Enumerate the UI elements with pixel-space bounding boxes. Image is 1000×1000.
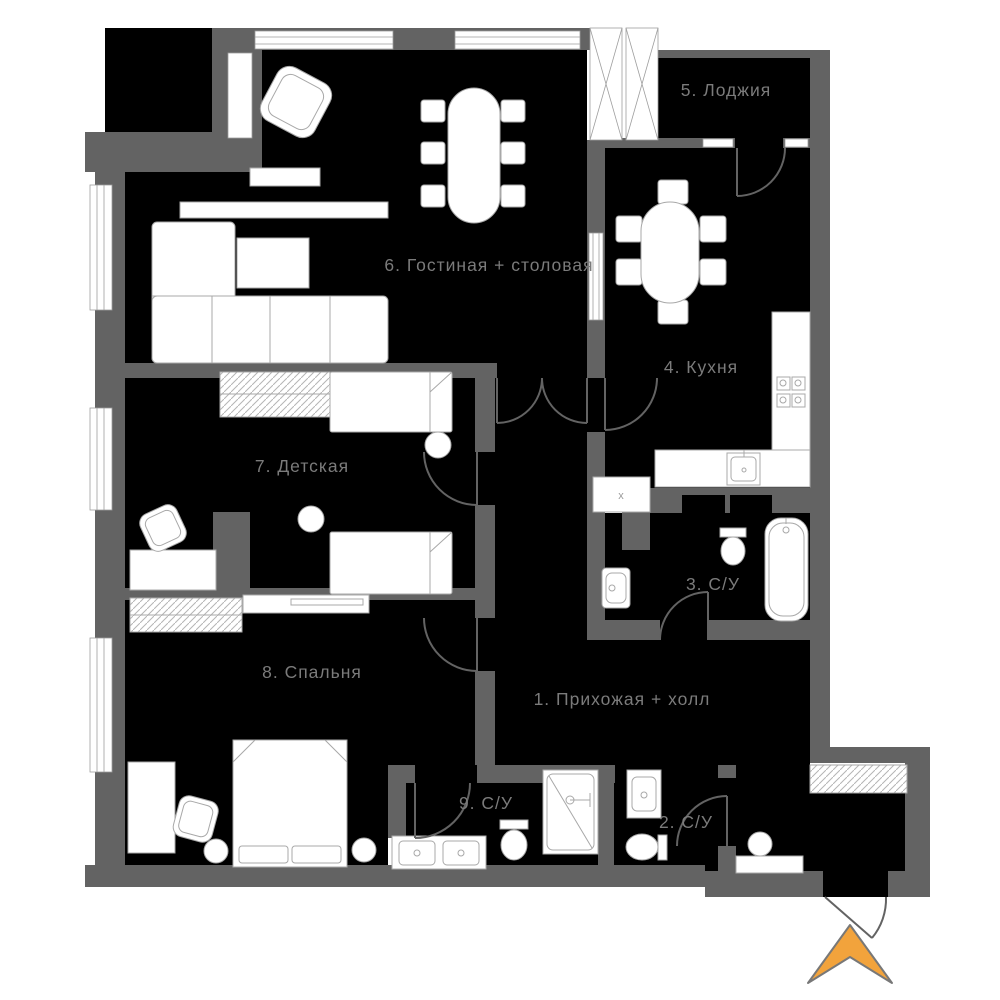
bath2-toilet-icon — [626, 834, 667, 860]
window-x-1 — [590, 28, 622, 140]
bedroom-pouf-left-icon — [204, 839, 228, 863]
niche-1 — [682, 495, 725, 513]
kitchen-sink-icon — [727, 450, 760, 485]
window-top-2 — [455, 31, 580, 49]
bedroom-wardrobe-icon — [130, 598, 242, 632]
label-kids: 7. Детская — [255, 456, 349, 476]
double-sink-icon — [392, 836, 486, 869]
shower-icon — [543, 770, 598, 854]
label-bath2: 2. С/У — [659, 812, 713, 832]
washing-machine-icon: x — [593, 477, 650, 512]
corridor-floor — [495, 378, 587, 640]
label-kitchen: 4. Кухня — [664, 357, 738, 377]
wall-pier-bath3 — [622, 512, 650, 550]
wall-loggia-top — [658, 50, 810, 58]
kitchen-counter-right — [772, 312, 810, 452]
label-bath9: 9. С/У — [459, 793, 513, 813]
kids-bed-2-icon — [330, 532, 452, 594]
wall-corridor — [475, 363, 495, 765]
coffee-table-icon — [237, 238, 309, 288]
kids-bed-1-icon — [330, 372, 452, 432]
kitchen-door-opening — [587, 378, 605, 432]
label-bath3: 3. С/У — [686, 574, 740, 594]
coat-closet-icon — [810, 765, 907, 793]
loggia-window-sill-2 — [785, 139, 808, 147]
label-loggia: 5. Лоджия — [681, 80, 771, 100]
niche-2 — [730, 495, 772, 513]
shelf-icon — [180, 202, 388, 218]
bedroom-dresser-icon — [243, 595, 369, 613]
wall-bottom-right — [705, 871, 930, 897]
bedroom-desk-icon — [128, 762, 175, 853]
bedroom-pouf-right-icon — [352, 838, 376, 862]
window-left-2 — [90, 408, 112, 510]
kids-desk-icon — [130, 550, 216, 590]
glazed-partition-living-kitchen — [589, 233, 603, 320]
window-x-2 — [626, 28, 658, 140]
window-slot-topleft — [228, 53, 252, 138]
window-left-3 — [90, 638, 112, 772]
entrance-door-opening — [823, 871, 888, 897]
bench-icon — [736, 856, 803, 873]
wall-kids-column — [213, 512, 250, 595]
shaft-room-floor — [105, 28, 212, 132]
window-left-1 — [90, 185, 112, 310]
window-top-1 — [255, 31, 393, 49]
loggia-window-sill-1 — [703, 139, 733, 147]
bath3-door-opening — [660, 620, 708, 640]
hall-pouf-icon — [748, 832, 772, 856]
kids-pouf-2-icon — [298, 506, 324, 532]
kids-pouf-1-icon — [425, 432, 451, 458]
loggia-door-opening — [735, 138, 783, 148]
wall-right — [810, 50, 830, 750]
washing-machine-mark: x — [618, 490, 624, 502]
wall-bath9-bath2 — [598, 765, 614, 875]
label-bedroom: 8. Спальня — [262, 662, 362, 682]
bathtub-icon — [765, 518, 808, 621]
double-bed-icon — [233, 740, 347, 867]
kids-wardrobe-icon — [220, 372, 330, 417]
tv-console-icon — [250, 168, 320, 186]
label-living: 6. Гостиная + столовая — [384, 255, 593, 275]
floor-plan-canvas: x — [0, 0, 1000, 1000]
wall-ext-right — [905, 747, 930, 897]
bath9-toilet-icon — [500, 820, 528, 860]
bath3-sink-icon — [602, 568, 630, 608]
label-hall: 1. Прихожая + холл — [534, 689, 711, 709]
bath2-sink-icon — [627, 770, 661, 818]
living-double-door-opening — [497, 363, 587, 378]
dining-table-icon — [421, 88, 525, 223]
wall-bath9-left — [388, 765, 406, 838]
bath9-door-opening — [415, 765, 477, 783]
bath3-toilet-icon — [720, 528, 746, 565]
floor-plan-page: x — [0, 0, 1000, 1000]
